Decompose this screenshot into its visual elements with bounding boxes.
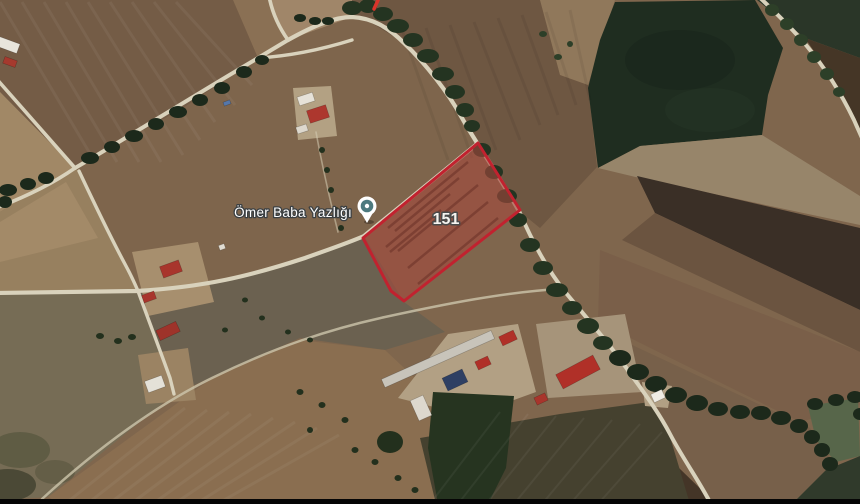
satellite-map: 151 Ömer Baba Yazlığı bbox=[0, 0, 860, 504]
letterbox-bar bbox=[0, 499, 860, 504]
parcel-number-label: 151 bbox=[433, 211, 460, 228]
satellite-map-viewport[interactable]: 151 Ömer Baba Yazlığı bbox=[0, 0, 860, 504]
place-label[interactable]: Ömer Baba Yazlığı bbox=[234, 205, 352, 220]
